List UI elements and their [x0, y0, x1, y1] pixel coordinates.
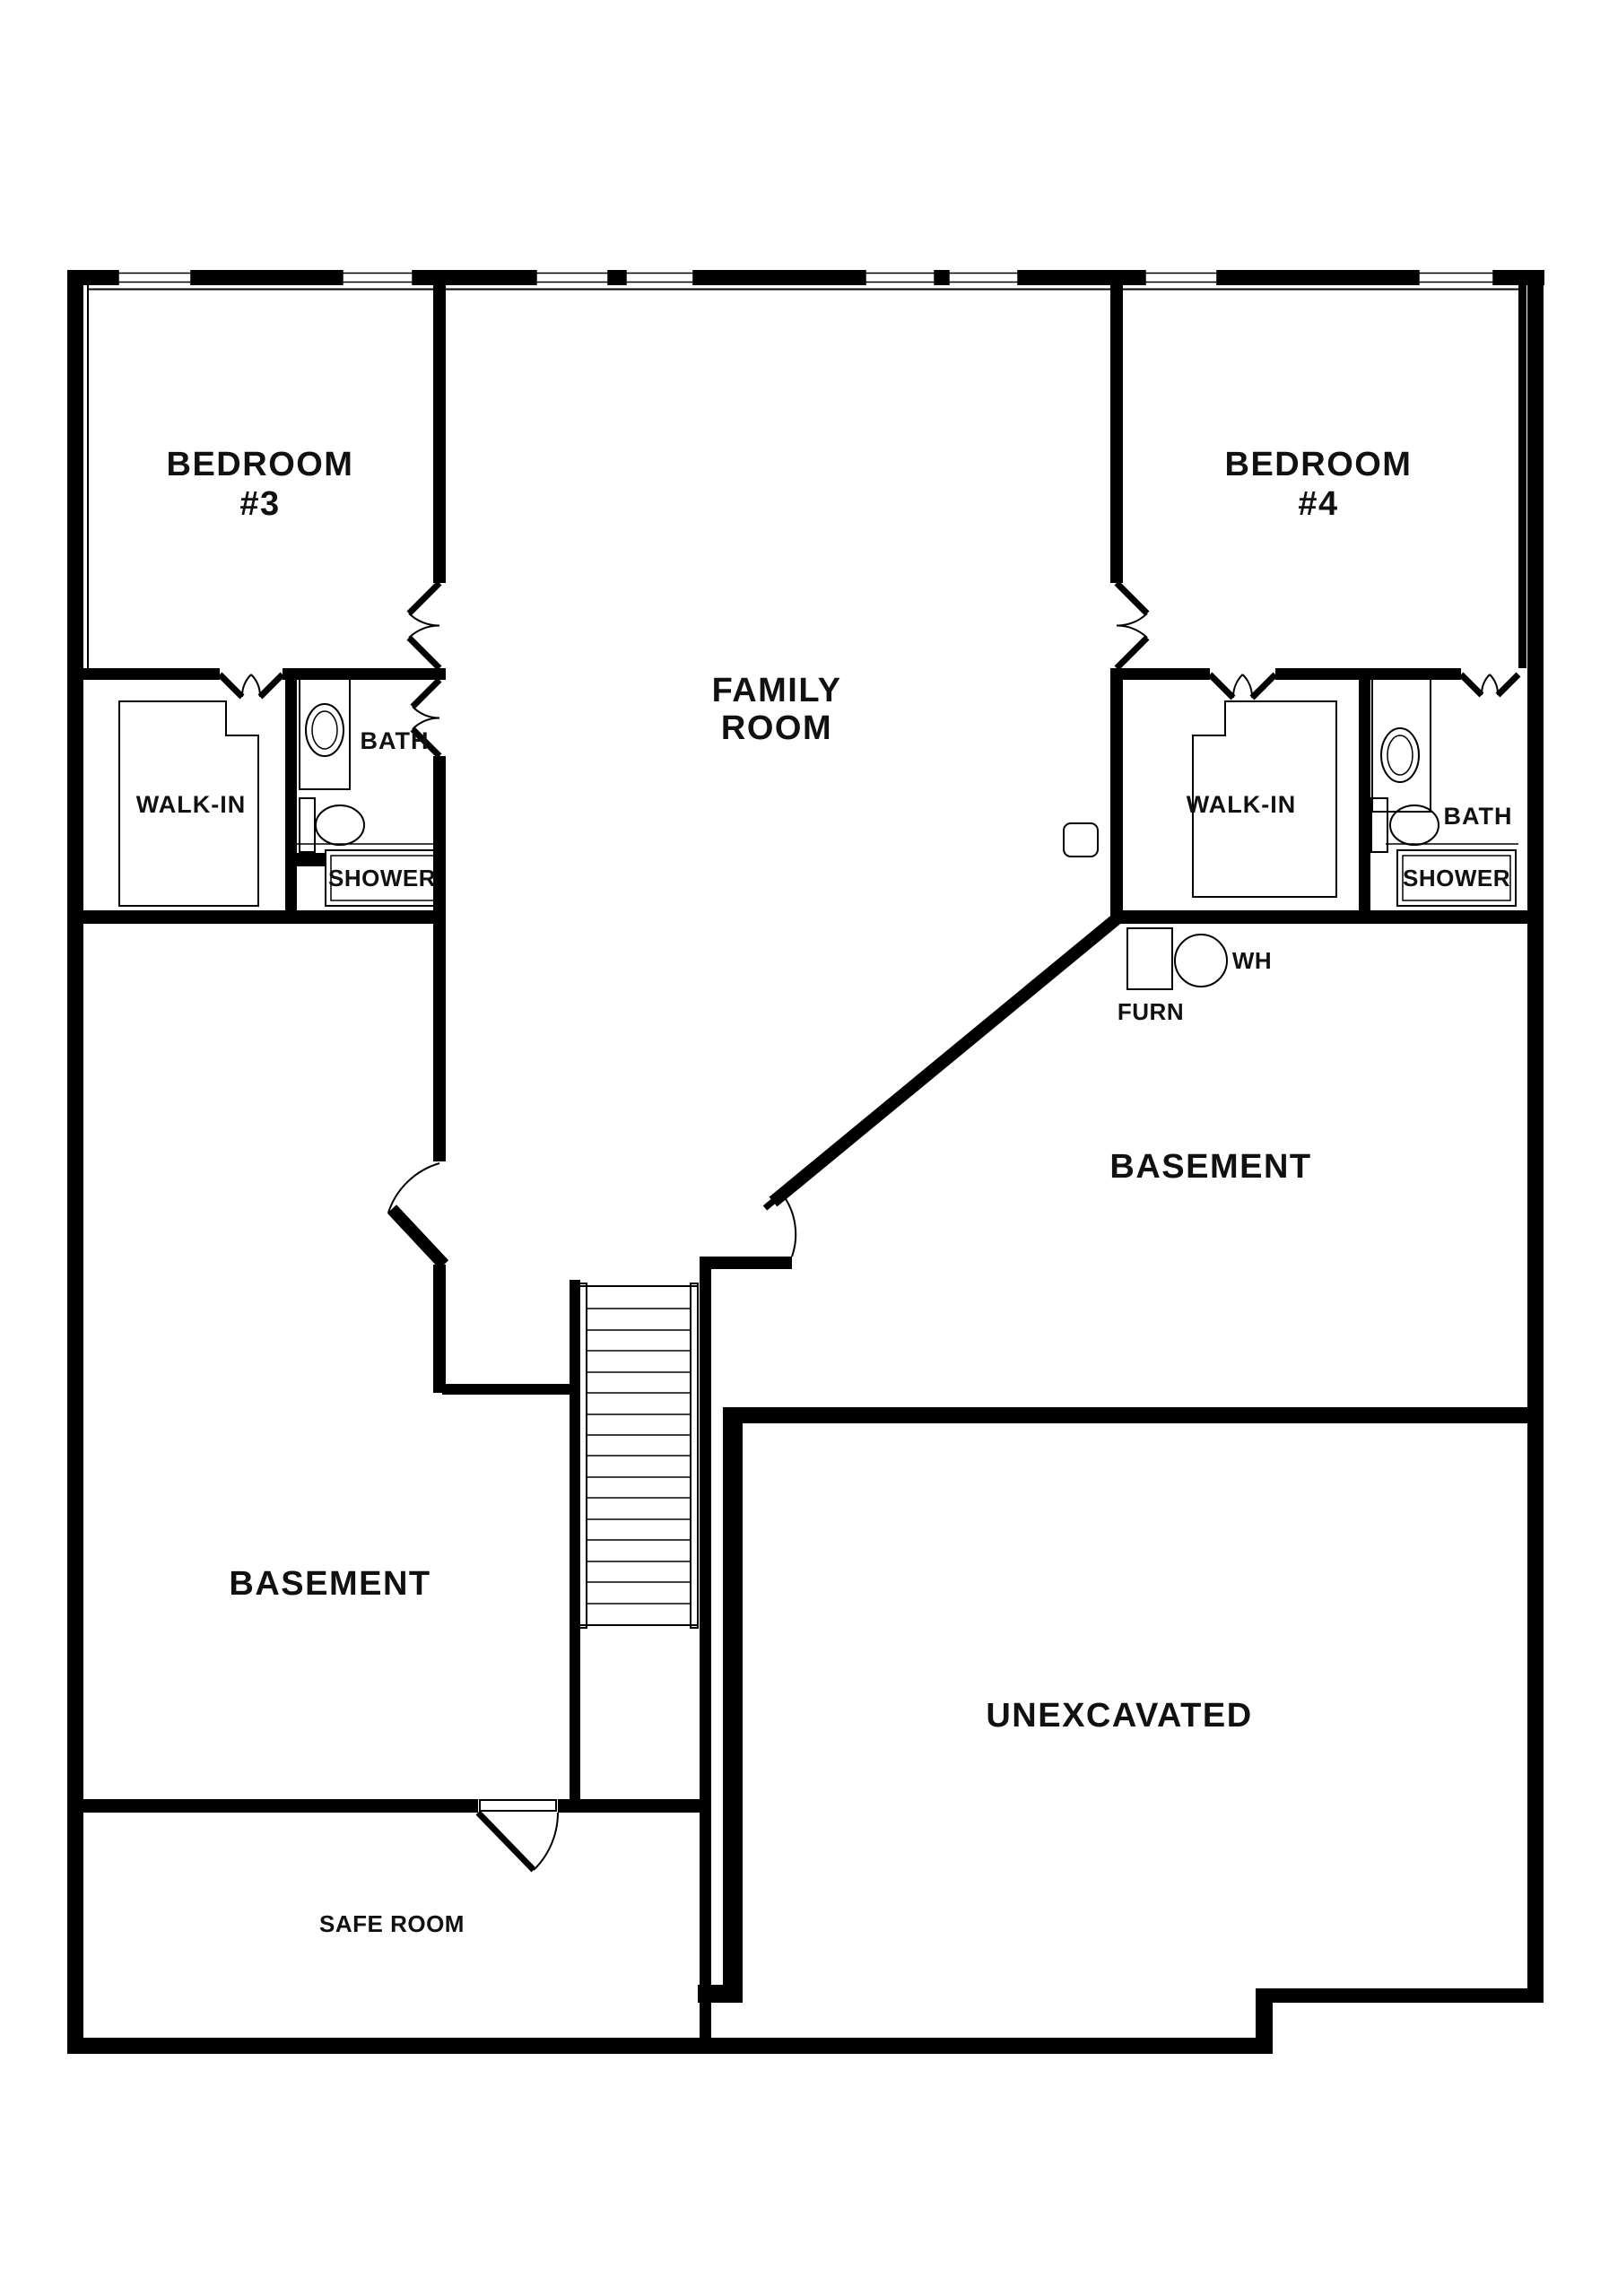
- bath-right-door: [1461, 674, 1518, 695]
- walk-in-right-door: [1210, 674, 1275, 698]
- bedroom3-door: [409, 583, 439, 668]
- room-label-bath-left: BATH: [361, 727, 430, 754]
- interior-walls: [83, 285, 1534, 2054]
- stairs: [579, 1283, 698, 1628]
- room-label-family-line2: ROOM: [721, 709, 832, 747]
- furnace-unit: [1127, 928, 1172, 989]
- room-label-bedroom3-line2: #3: [239, 485, 280, 523]
- label-water-heater: WH: [1232, 947, 1272, 974]
- label-furnace: FURN: [1118, 998, 1184, 1025]
- room-label-safe-room: SAFE ROOM: [319, 1910, 465, 1937]
- wall-niche: [1064, 823, 1098, 857]
- room-label-family-line1: FAMILY: [712, 672, 842, 709]
- room-label-basement-right: BASEMENT: [1109, 1148, 1311, 1186]
- room-label-bedroom4-line1: BEDROOM: [1225, 446, 1413, 483]
- water-heater-unit: [1175, 935, 1227, 987]
- sink-left: [300, 677, 350, 789]
- safe-room-door: [478, 1800, 558, 1870]
- room-label-walk-in-left: WALK-IN: [136, 791, 246, 818]
- outer-walls: [67, 270, 1544, 2054]
- room-label-walk-in-right: WALK-IN: [1187, 791, 1296, 818]
- room-label-bedroom4-line2: #4: [1298, 485, 1338, 523]
- sink-right: [1372, 677, 1431, 812]
- walk-in-left-door: [220, 674, 283, 697]
- floor-plan: BEDROOM #3 BEDROOM #4 FAMILY ROOM WALK-I…: [0, 0, 1609, 2296]
- room-label-shower-left: SHOWER: [328, 865, 436, 891]
- bedroom4-door: [1117, 583, 1147, 668]
- room-label-bedroom3-line1: BEDROOM: [167, 446, 354, 483]
- room-label-shower-right: SHOWER: [1403, 865, 1510, 891]
- room-label-basement-left: BASEMENT: [229, 1565, 431, 1603]
- floor-plan-page: BEDROOM #3 BEDROOM #4 FAMILY ROOM WALK-I…: [0, 0, 1609, 2296]
- room-label-bath-right: BATH: [1444, 803, 1513, 830]
- room-label-unexcavated: UNEXCAVATED: [986, 1697, 1252, 1735]
